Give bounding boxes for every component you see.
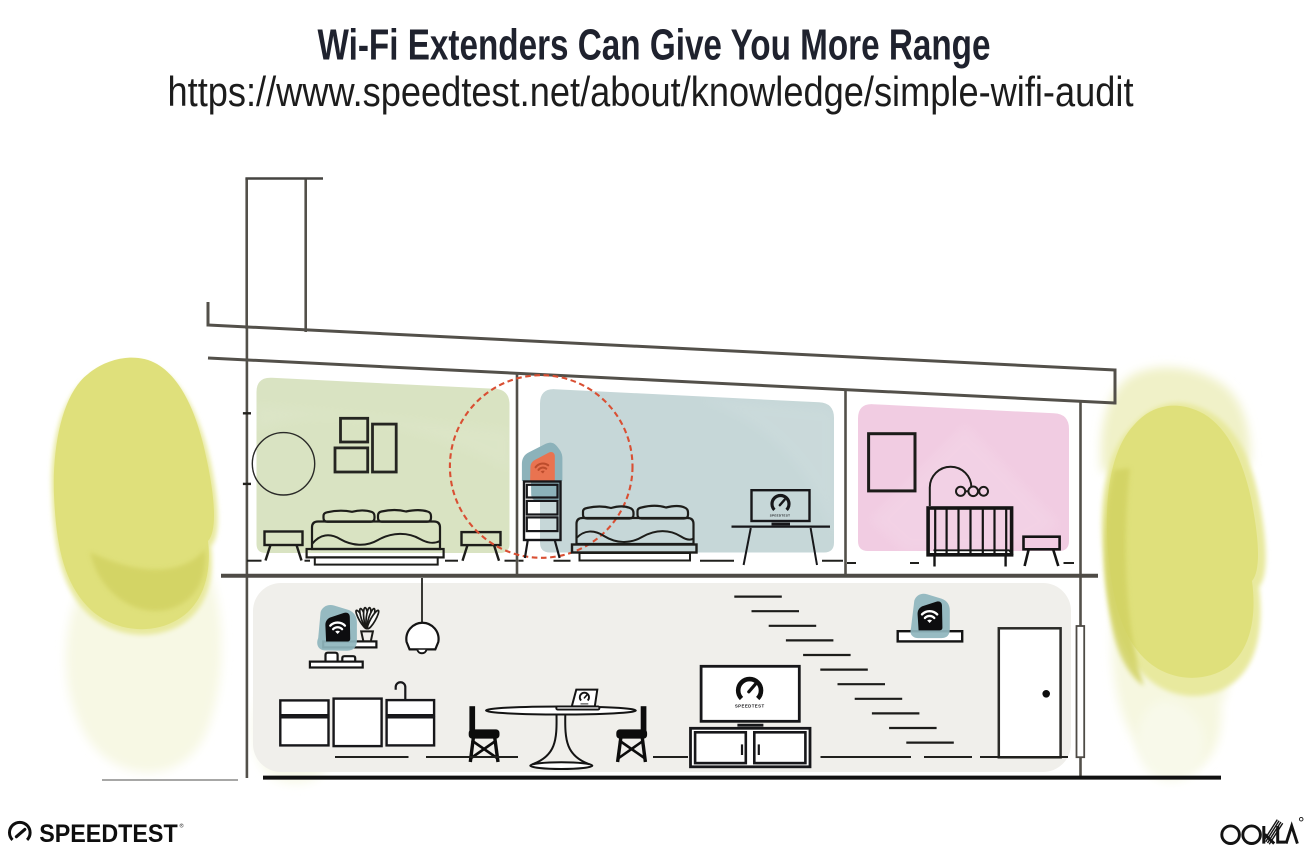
svg-text:Wi-Fi Extenders Can Give You M: Wi-Fi Extenders Can Give You More Range bbox=[318, 22, 991, 70]
svg-text:SPEEDTEST: SPEEDTEST bbox=[39, 820, 178, 848]
svg-text:®: ® bbox=[180, 823, 184, 830]
svg-text:SPEEDTEST: SPEEDTEST bbox=[735, 703, 765, 708]
svg-text:SPEEDTEST: SPEEDTEST bbox=[770, 513, 791, 517]
svg-text:https://www.speedtest.net/abou: https://www.speedtest.net/about/knowledg… bbox=[168, 68, 1134, 115]
